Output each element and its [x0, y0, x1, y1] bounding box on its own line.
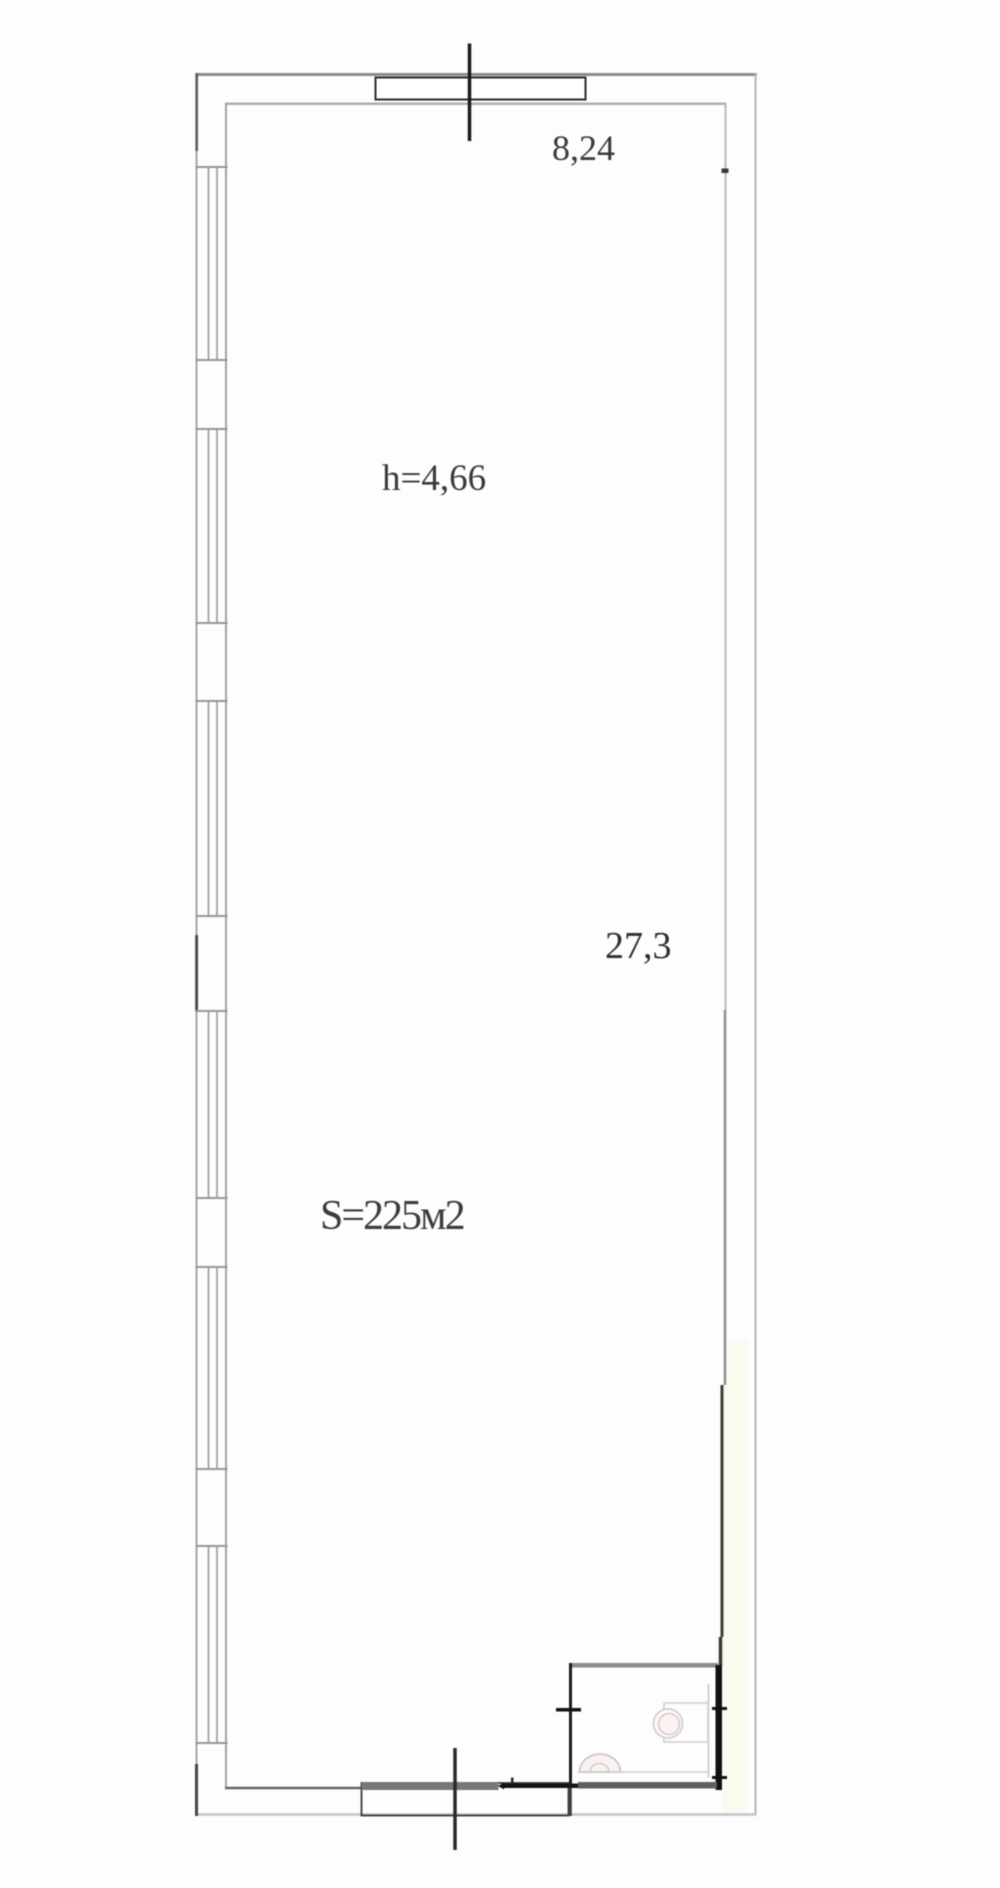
svg-text:S=225м2: S=225м2 — [320, 1193, 464, 1239]
svg-text:8,24: 8,24 — [552, 128, 615, 168]
svg-text:27,3: 27,3 — [605, 925, 672, 967]
svg-text:h=4,66: h=4,66 — [382, 458, 486, 499]
